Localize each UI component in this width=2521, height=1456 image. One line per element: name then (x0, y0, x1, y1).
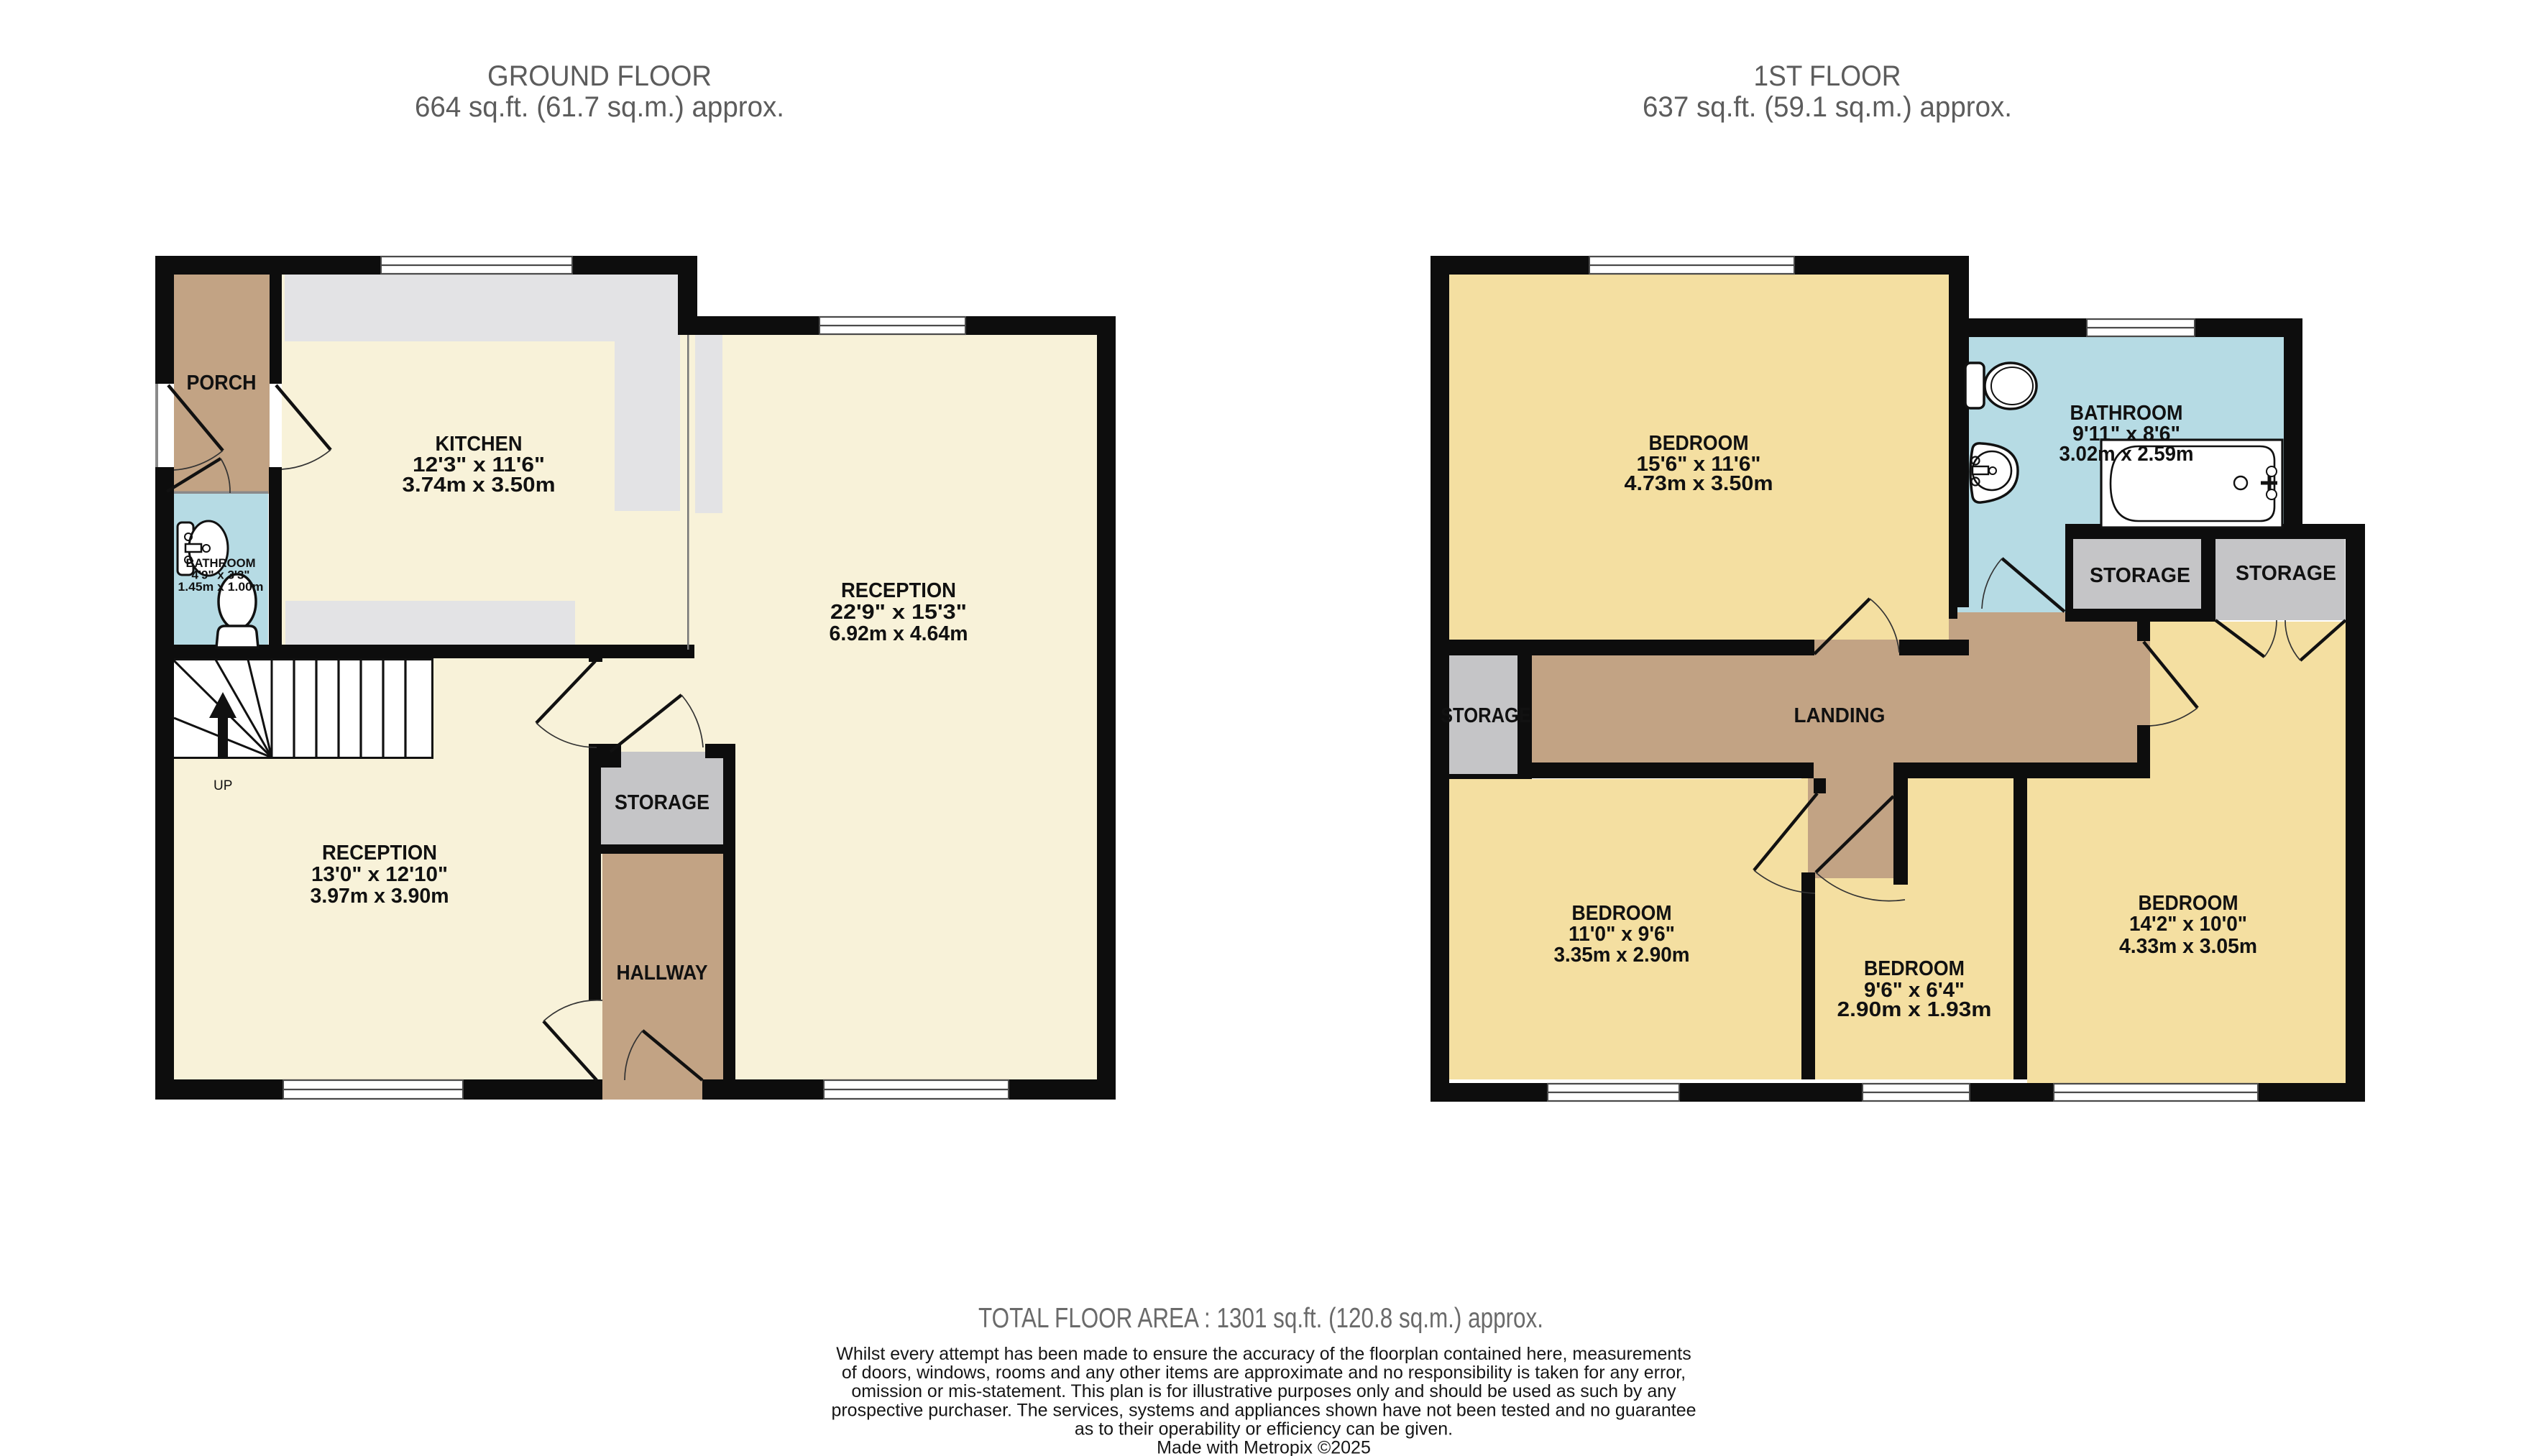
svg-text:STORAGE: STORAGE (615, 791, 710, 814)
svg-text:4.73m x 3.50m: 4.73m x 3.50m (1625, 472, 1773, 495)
svg-text:4.33m x 3.05m: 4.33m x 3.05m (2119, 935, 2257, 958)
svg-text:22'9" x 15'3": 22'9" x 15'3" (830, 601, 967, 624)
svg-text:HALLWAY: HALLWAY (617, 962, 708, 985)
svg-text:GROUND FLOOR: GROUND FLOOR (487, 60, 712, 92)
svg-text:RECEPTION: RECEPTION (322, 842, 437, 865)
svg-text:as to their operability or eff: as to their operability or efficiency ca… (1075, 1419, 1453, 1439)
svg-text:BEDROOM: BEDROOM (1649, 432, 1749, 455)
svg-text:RECEPTION: RECEPTION (841, 579, 956, 602)
svg-text:KITCHEN: KITCHEN (436, 433, 523, 456)
svg-text:BEDROOM: BEDROOM (1572, 902, 1672, 925)
svg-text:BEDROOM: BEDROOM (2139, 892, 2238, 915)
svg-text:11'0" x 9'6": 11'0" x 9'6" (1569, 923, 1675, 946)
svg-text:2.90m x 1.93m: 2.90m x 1.93m (1837, 998, 1992, 1021)
svg-text:3.97m x 3.90m: 3.97m x 3.90m (311, 885, 449, 908)
svg-text:13'0" x 12'10": 13'0" x 12'10" (311, 863, 448, 886)
svg-text:637 sq.ft. (59.1 sq.m.) approx: 637 sq.ft. (59.1 sq.m.) approx. (1643, 91, 2012, 123)
svg-text:STORAGE: STORAGE (1441, 704, 1531, 727)
svg-text:omission or mis-statement. Thi: omission or mis-statement. This plan is … (851, 1381, 1676, 1401)
svg-text:3.74m x 3.50m: 3.74m x 3.50m (403, 474, 556, 497)
svg-text:PORCH: PORCH (187, 372, 257, 395)
svg-text:BEDROOM: BEDROOM (1864, 957, 1965, 980)
svg-text:1ST FLOOR: 1ST FLOOR (1754, 60, 1901, 92)
svg-text:STORAGE: STORAGE (2090, 564, 2190, 587)
svg-text:3.35m x 2.90m: 3.35m x 2.90m (1554, 944, 1690, 967)
svg-text:TOTAL FLOOR AREA : 1301 sq.ft.: TOTAL FLOOR AREA : 1301 sq.ft. (120.8 sq… (978, 1303, 1543, 1334)
svg-text:of doors, windows, rooms and a: of doors, windows, rooms and any other i… (842, 1363, 1686, 1383)
svg-text:Whilst every attempt has been: Whilst every attempt has been made to en… (836, 1344, 1691, 1364)
svg-text:BATHROOM: BATHROOM (2070, 402, 2183, 425)
svg-text:UP: UP (213, 778, 232, 793)
svg-text:14'2" x 10'0": 14'2" x 10'0" (2129, 913, 2247, 936)
svg-text:Made with Metropix ©2025: Made with Metropix ©2025 (1157, 1438, 1371, 1456)
svg-text:3.02m x 2.59m: 3.02m x 2.59m (2059, 443, 2194, 466)
svg-text:664 sq.ft. (61.7 sq.m.) approx: 664 sq.ft. (61.7 sq.m.) approx. (415, 91, 784, 123)
svg-text:STORAGE: STORAGE (2236, 562, 2336, 585)
svg-text:1.45m x 1.00m: 1.45m x 1.00m (178, 580, 264, 594)
svg-text:LANDING: LANDING (1794, 704, 1886, 727)
svg-text:6.92m x 4.64m: 6.92m x 4.64m (830, 622, 968, 645)
svg-text:prospective purchaser. The ser: prospective purchaser. The services, sys… (831, 1400, 1696, 1420)
